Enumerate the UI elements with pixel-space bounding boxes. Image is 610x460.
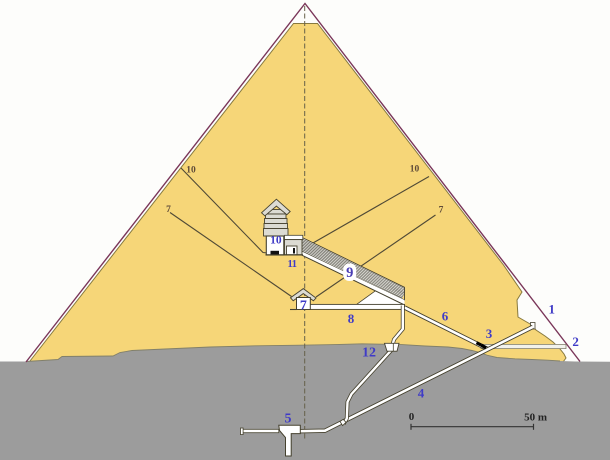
svg-text:11: 11 [288,259,297,270]
svg-text:3: 3 [486,326,493,341]
svg-text:1: 1 [549,302,556,317]
svg-text:8: 8 [348,311,355,326]
svg-text:10: 10 [270,234,282,246]
svg-text:5: 5 [285,412,292,427]
svg-text:10: 10 [186,166,196,176]
svg-text:12: 12 [362,345,376,360]
svg-text:2: 2 [572,334,579,349]
svg-text:7: 7 [300,298,307,313]
svg-text:7: 7 [439,206,444,216]
svg-text:6: 6 [442,309,449,324]
svg-text:9: 9 [346,265,353,281]
svg-text:50 m: 50 m [524,412,547,424]
svg-text:10: 10 [410,165,420,175]
svg-text:4: 4 [418,386,425,401]
svg-text:0: 0 [409,411,415,423]
svg-text:7: 7 [166,205,171,215]
